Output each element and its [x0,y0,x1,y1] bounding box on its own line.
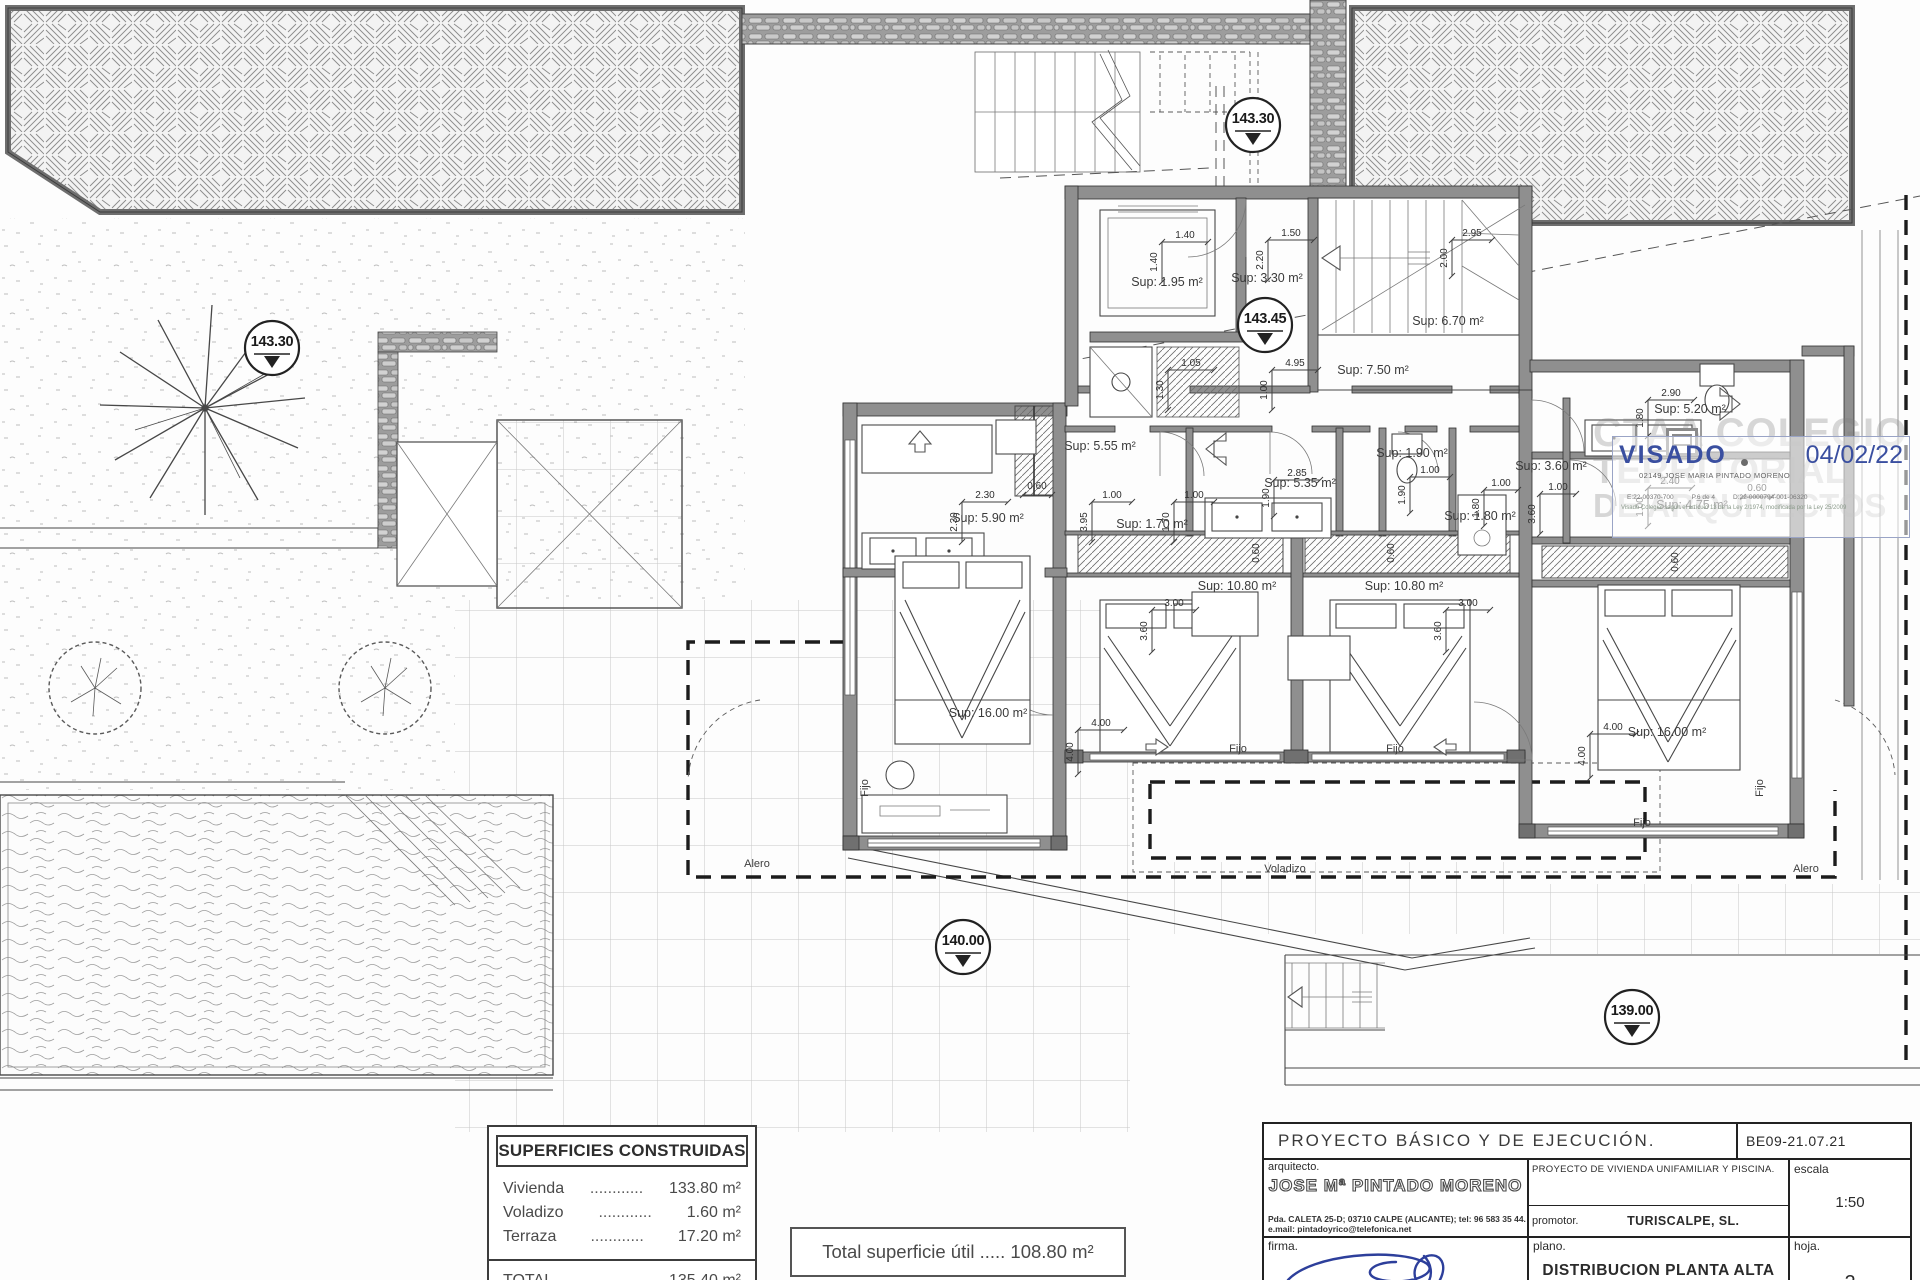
svg-text:Sup: 16.00 m²: Sup: 16.00 m² [1628,725,1707,739]
table-row: Terraza ............ 17.20 m² [503,1225,741,1249]
svg-text:Sup: 5.20 m²: Sup: 5.20 m² [1654,402,1726,416]
svg-text:1.00: 1.00 [1102,490,1122,501]
svg-text:Sup: 3.60 m²: Sup: 3.60 m² [1515,459,1587,473]
svg-text:Fijo: Fijo [1229,743,1247,755]
svg-text:1.00: 1.00 [1420,465,1440,476]
svg-text:143.30: 143.30 [1232,111,1275,127]
svg-text:2.95: 2.95 [1462,228,1482,239]
svg-text:3.95: 3.95 [1079,512,1090,532]
svg-text:1.40: 1.40 [1149,252,1160,272]
svg-text:Sup: 5.90 m²: Sup: 5.90 m² [952,511,1024,525]
svg-text:2.30: 2.30 [975,490,995,501]
svg-text:Sup: 5.55 m²: Sup: 5.55 m² [1064,439,1136,453]
svg-text:Sup: 10.80 m²: Sup: 10.80 m² [1198,579,1277,593]
svg-text:Sup: 10.80 m²: Sup: 10.80 m² [1365,579,1444,593]
elevation-marker: 143.45 [1238,298,1292,352]
collegiate-number: 02149 JOSE MARIA PINTADO MORENO [1613,470,1909,480]
svg-text:4.00: 4.00 [1577,746,1588,766]
svg-text:Fijo: Fijo [1754,779,1766,797]
svg-text:Sup: 5.35 m²: Sup: 5.35 m² [1264,476,1336,490]
svg-text:Sup: 1.90 m²: Sup: 1.90 m² [1376,446,1448,460]
roof-hatch-top-left [8,8,742,212]
svg-text:Sup: 1.95 m²: Sup: 1.95 m² [1131,275,1203,289]
svg-text:Alero: Alero [744,858,770,870]
svg-text:4.00: 4.00 [1065,742,1076,762]
floor-plan-drawing: 1.40 1.40 1.50 2.20 2.95 2.00 1.05 1.30 … [0,0,1920,1280]
visado-label: VISADO [1619,441,1727,470]
elevation-marker: 143.30 [1226,98,1280,152]
table-row: Voladizo ............ 1.60 m² [503,1201,741,1225]
svg-text:0.60: 0.60 [1386,543,1397,563]
floor-plan-canvas: 1.40 1.40 1.50 2.20 2.95 2.00 1.05 1.30 … [0,0,1920,1280]
plan-name-cell: plano. DISTRIBUCION PLANTA ALTA [1529,1238,1790,1280]
svg-text:1.50: 1.50 [1281,228,1301,239]
svg-text:Sup: 16.00 m²: Sup: 16.00 m² [949,706,1028,720]
svg-text:143.30: 143.30 [251,334,294,350]
svg-text:3.00: 3.00 [1164,598,1184,609]
svg-text:Sup: 1.80 m²: Sup: 1.80 m² [1444,509,1516,523]
stamp-code-d: D:22-0000794-001-06320 [1733,494,1807,501]
svg-text:1.80: 1.80 [1635,408,1646,428]
svg-text:Sup: 3.30 m²: Sup: 3.30 m² [1231,271,1303,285]
project-cell: PROYECTO DE VIVIENDA UNIFAMILIAR Y PISCI… [1529,1160,1790,1236]
svg-text:Sup: 6.70 m²: Sup: 6.70 m² [1412,314,1484,328]
architect-name: JOSE Mª PINTADO MORENO [1264,1176,1527,1196]
svg-text:0.60: 0.60 [1670,552,1681,572]
promoter-label: promotor. [1532,1215,1578,1227]
interior-stairs [1318,198,1525,390]
svg-text:1.90: 1.90 [1261,488,1272,508]
svg-text:0.60: 0.60 [1027,481,1047,492]
architect-email: e.mail: pintadoyrico@telefonica.net [1268,1224,1411,1234]
svg-text:Voladizo: Voladizo [1264,863,1306,875]
promoter-name: TURISCALPE, SL. [1578,1214,1788,1228]
svg-text:1.00: 1.00 [1491,478,1511,489]
elevation-marker: 139.00 [1605,990,1659,1044]
architect-cell: arquitecto. JOSE Mª PINTADO MORENO Pda. … [1264,1160,1529,1236]
svg-text:1.30: 1.30 [1155,380,1166,400]
svg-text:4.95: 4.95 [1285,358,1305,369]
visado-date: 04/02/22 [1806,441,1903,470]
svg-text:1.90: 1.90 [1397,485,1408,505]
svg-text:1.05: 1.05 [1181,358,1201,369]
svg-text:1.00: 1.00 [1548,482,1568,493]
total-useful-surface-box: Total superficie útil ..... 108.80 m² [790,1227,1126,1277]
svg-text:1.00: 1.00 [1184,490,1204,501]
pool [0,782,553,1090]
stamp-legal-note: Visado Colegial según el artículo 13 de … [1613,501,1909,511]
svg-text:2.20: 2.20 [1255,250,1266,270]
svg-text:1.40: 1.40 [1175,230,1195,241]
svg-text:140.00: 140.00 [942,933,985,949]
stamp-dot-icon [1741,459,1748,466]
architect-address: Pda. CALETA 25-D; 03710 CALPE (ALICANTE)… [1268,1214,1526,1224]
svg-text:Sup: 1.70 m²: Sup: 1.70 m² [1116,517,1188,531]
svg-text:Fijo: Fijo [1633,817,1651,829]
project-description: PROYECTO DE VIVIENDA UNIFAMILIAR Y PISCI… [1529,1160,1788,1206]
project-title: PROYECTO BÁSICO Y DE EJECUCIÓN. [1264,1124,1738,1158]
svg-text:143.45: 143.45 [1244,311,1287,327]
visado-stamp: VISADO 04/02/22 02149 JOSE MARIA PINTADO… [1612,436,1910,538]
title-block: PROYECTO BÁSICO Y DE EJECUCIÓN. BE09-21.… [1262,1122,1912,1280]
svg-text:2.90: 2.90 [1661,388,1681,399]
svg-text:139.00: 139.00 [1611,1003,1654,1019]
signature-cell: firma. [1264,1238,1529,1280]
svg-text:3.60: 3.60 [1527,504,1538,524]
plan-name: DISTRIBUCION PLANTA ALTA [1529,1262,1788,1280]
table-row: Vivienda ............ 133.80 m² [503,1177,741,1201]
signature-icon [1274,1246,1514,1280]
svg-text:Alero: Alero [1793,863,1819,875]
svg-text:Fijo: Fijo [859,779,871,797]
scale-cell: escala 1:50 [1790,1160,1910,1236]
svg-text:0.60: 0.60 [1251,543,1262,563]
svg-text:Sup: 7.50 m²: Sup: 7.50 m² [1337,363,1409,377]
svg-text:4.00: 4.00 [1091,718,1111,729]
svg-text:4.00: 4.00 [1603,722,1623,733]
surfaces-table-title: SUPERFICIES CONSTRUIDAS [496,1135,748,1167]
svg-text:1.00: 1.00 [1259,380,1270,400]
sheet-cell: hoja. 2 [1790,1238,1910,1280]
elevation-marker: 140.00 [936,920,990,974]
svg-text:3.60: 3.60 [1139,621,1150,641]
elevation-marker: 143.30 [245,321,299,375]
drawing-code: BE09-21.07.21 [1738,1124,1910,1158]
svg-text:2.00: 2.00 [1439,248,1450,268]
scale-value: 1:50 [1790,1194,1910,1211]
svg-text:Fijo: Fijo [1386,743,1404,755]
svg-text:3.60: 3.60 [1433,621,1444,641]
surfaces-table: SUPERFICIES CONSTRUIDAS Vivienda .......… [487,1125,757,1280]
stamp-code-e: E:22-00370-700 [1627,494,1674,501]
table-total-row: TOTAL ............ 135.40 m² [489,1259,755,1280]
sheet-number: 2 [1790,1272,1910,1280]
stamp-code-p: P.6 de 4 [1692,494,1715,501]
svg-text:3.00: 3.00 [1458,598,1478,609]
